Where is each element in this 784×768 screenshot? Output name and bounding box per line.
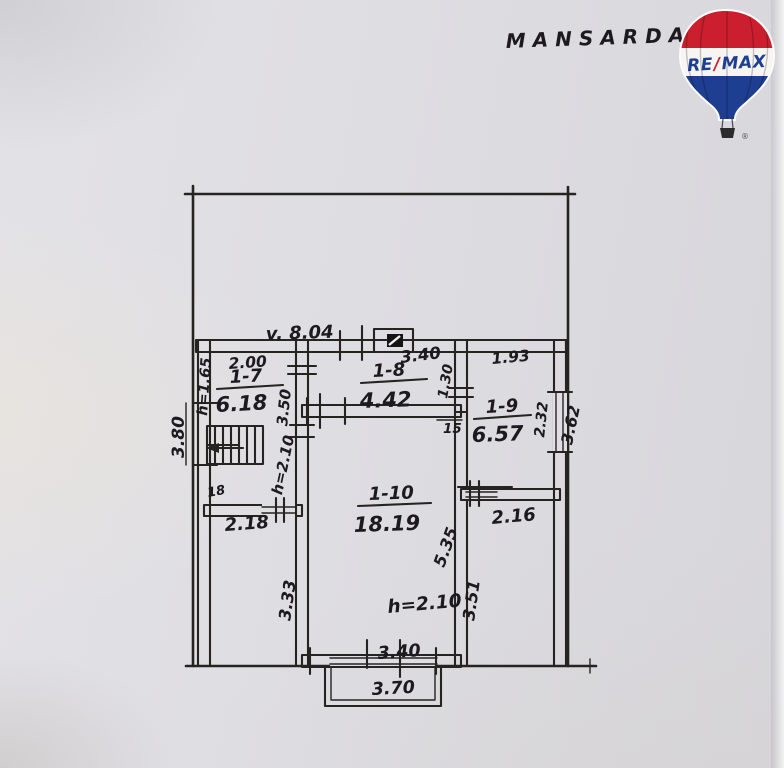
note-r10-height: h=2.10 (387, 591, 463, 618)
dim-r7-right: 3.50 (273, 388, 295, 427)
ticks-top-wall (340, 326, 362, 360)
dim-r8-right: 1.30 (435, 363, 457, 400)
room-1-10-area-label: 18.19 (353, 511, 420, 537)
page-title: MANSARDA (505, 23, 691, 53)
dim-r10-bottom: 3.40 (377, 641, 421, 664)
room-1-7-area-label: 6.18 (215, 390, 268, 417)
dim-wall-thickness: 15 (443, 421, 462, 437)
dim-r9-window: 2.32 (532, 401, 552, 438)
dim-left-side: 3.80 (169, 416, 189, 458)
room-1-9-area-label: 6.57 (471, 421, 524, 447)
balloon-basket-icon (720, 128, 735, 138)
dim-stair-steps: 18 (206, 483, 226, 501)
note-r7-height: h=1.65 (195, 357, 215, 416)
dim-r9-bottom: 2.16 (491, 504, 537, 529)
dim-balcony-width: 3.70 (371, 678, 415, 700)
floor-plan-svg: MANSARDA RE/MAX (0, 0, 784, 768)
dim-r9-top: 1.93 (491, 347, 531, 368)
dim-r7-bottom: 2.18 (224, 512, 270, 536)
staircase (206, 426, 263, 464)
dim-r7-width: 2.00 (228, 352, 268, 373)
wall-r8-r9 (455, 340, 467, 412)
brand-re: RE (687, 55, 714, 76)
room-1-10-id-label: 1-10 (368, 482, 414, 505)
ticks-hall-opening (307, 394, 345, 428)
wall-mid-left (296, 340, 308, 666)
room-1-9-id-label: 1-9 (485, 395, 519, 418)
balloon-brand-text: RE/MAX (687, 52, 767, 76)
dim-overall-width: v. 8.04 (265, 322, 333, 345)
note-hall-height: h=2.10 (268, 434, 298, 497)
dim-r8-width: 3.40 (399, 343, 442, 367)
dim-r10-right-outside: 3.51 (459, 579, 483, 622)
remax-balloon-logo: RE/MAX ® (674, 6, 782, 141)
wall-right (554, 340, 566, 666)
dim-r10-right-inside: 5.35 (430, 525, 462, 570)
registered-mark: ® (741, 132, 749, 141)
ticks-r7-r8-wall (288, 366, 316, 374)
ticks-mid-wall (290, 425, 314, 437)
room-1-8-area-label: 4.42 (358, 387, 412, 413)
scanned-floor-plan-page: MANSARDA RE/MAX (0, 0, 784, 768)
brand-max: MAX (721, 52, 767, 74)
